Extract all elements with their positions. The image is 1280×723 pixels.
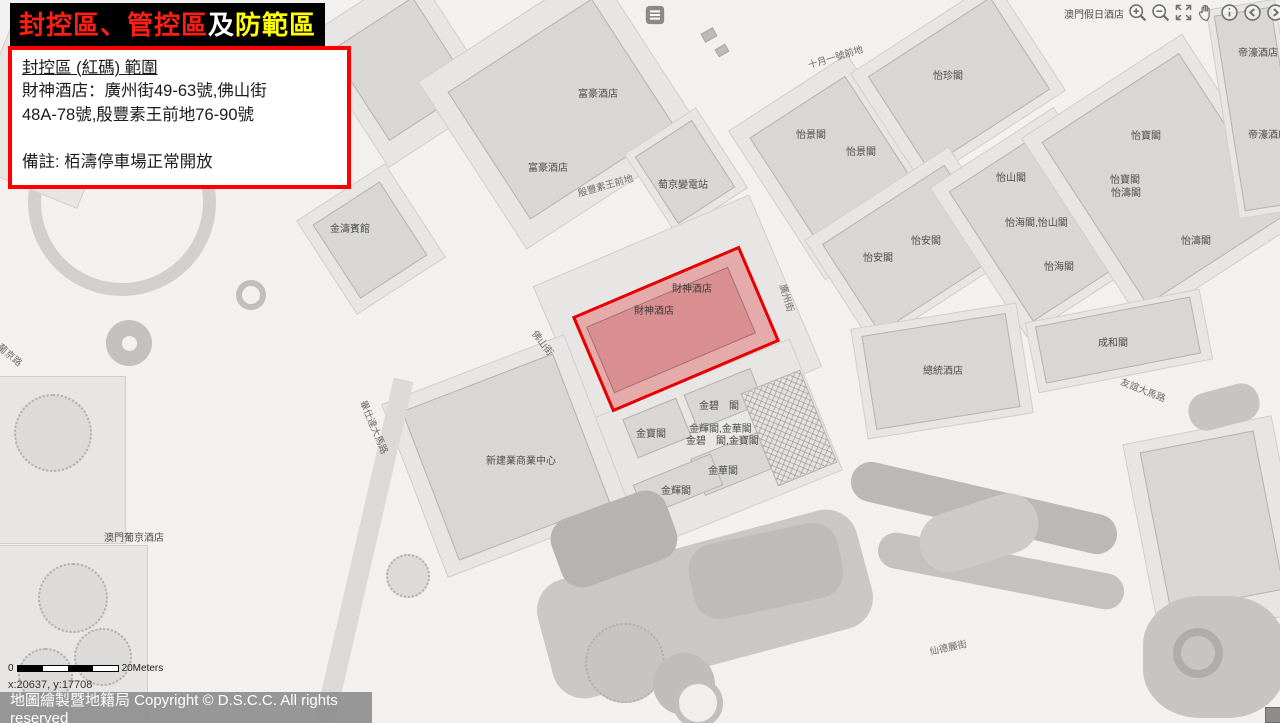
- roundabout-small: [236, 280, 266, 310]
- title-yellow-segment: 防範區: [235, 10, 316, 40]
- map-label: 成和閣: [1098, 334, 1128, 349]
- info-box-line1: 財神酒店：廣州街49-63號,佛山街: [22, 80, 337, 103]
- map-label: 澳門假日酒店: [1064, 6, 1124, 21]
- street-label: 葡京路: [0, 340, 26, 369]
- zone-label: 財神酒店: [672, 280, 712, 295]
- copyright-bar: 地圖繪製暨地籍局 Copyright © D.S.C.C. All rights…: [0, 692, 372, 723]
- garden-circle: [1173, 628, 1223, 678]
- zoom-in-icon[interactable]: [1127, 2, 1148, 23]
- zone-label: 財神酒店: [634, 302, 674, 317]
- street-label: 友誼大馬路: [1119, 374, 1168, 405]
- map-label: 怡海閣: [1044, 258, 1074, 273]
- scale-end: 20Meters: [122, 663, 164, 674]
- scale-bar-graphic: [17, 665, 119, 672]
- overview-map-icon[interactable]: [1265, 707, 1280, 723]
- map-toolbar: [1127, 2, 1280, 23]
- garden-circle: [386, 554, 430, 598]
- map-application: 澳門假日酒店 帝濠酒店 帝濠酒店 十月一號前地 怡珍閣 富豪酒店 富豪酒店 殷豐…: [0, 0, 1280, 723]
- map-label: 金濤賓館: [330, 220, 370, 235]
- map-label: 怡濤閣: [1181, 232, 1211, 247]
- map-label: 金華閣: [708, 462, 738, 477]
- map-label: 富豪酒店: [578, 85, 618, 100]
- map-label: 富豪酒店: [528, 159, 568, 174]
- garden-circle: [673, 678, 723, 723]
- map-label: 怡景閣: [846, 143, 876, 158]
- map-label: 金碧 閣: [699, 397, 739, 412]
- map-label: 萄京變電站: [658, 176, 708, 191]
- roundabout-center: [122, 336, 137, 351]
- map-label: 怡景閣: [796, 126, 826, 141]
- map-label: 新建業商業中心: [486, 452, 556, 467]
- info-box-heading: 封控區 (紅碼) 範圍: [22, 57, 337, 80]
- small-structure: [700, 27, 717, 43]
- map-label: 金輝閣: [661, 482, 691, 497]
- scale-bar: 0 20Meters: [8, 663, 163, 674]
- map-label: 怡珍閣: [933, 67, 963, 82]
- map-label: 怡山閣: [996, 169, 1026, 184]
- info-box-line2: 48A-78號,殷豐素王前地76-90號: [22, 104, 337, 127]
- small-structure: [715, 44, 730, 58]
- map-label: 怡安閣: [863, 249, 893, 264]
- info-box: 封控區 (紅碼) 範圍 財神酒店：廣州街49-63號,佛山街 48A-78號,殷…: [8, 46, 351, 189]
- map-label: 帝濠酒店: [1238, 44, 1278, 59]
- title-white-segment: 及: [208, 10, 235, 40]
- full-extent-icon[interactable]: [1173, 2, 1194, 23]
- title-red-segment: 封控區、管控區: [19, 10, 208, 40]
- garden-circle: [38, 563, 108, 633]
- map-label: 澳門葡京酒店: [104, 529, 164, 544]
- info-box-note: 備註: 栢濤停車場正常開放: [22, 151, 337, 174]
- garden-circle: [74, 628, 132, 686]
- copyright-text: 地圖繪製暨地籍局 Copyright © D.S.C.C. All rights…: [10, 689, 372, 723]
- map-label: 總統酒店: [923, 362, 963, 377]
- layers-icon[interactable]: [644, 4, 666, 26]
- page-title: 封控區、管控區及防範區: [10, 3, 325, 46]
- map-label: 金寶閣: [636, 425, 666, 440]
- zoom-out-icon[interactable]: [1150, 2, 1171, 23]
- map-label: 怡安閣: [911, 232, 941, 247]
- map-label: 怡濤閣: [1111, 184, 1141, 199]
- map-label: 怡海閣,怡山閣: [1005, 214, 1068, 229]
- previous-extent-icon[interactable]: [1242, 2, 1263, 23]
- pan-icon[interactable]: [1196, 2, 1217, 23]
- street-median: [311, 377, 414, 723]
- next-extent-icon[interactable]: [1265, 2, 1280, 23]
- map-label: 怡寶閣: [1131, 127, 1161, 142]
- scale-start: 0: [8, 663, 14, 674]
- building-fortuna-hotel: [447, 0, 674, 220]
- map-label: 帝濠酒店: [1248, 126, 1280, 141]
- identify-icon[interactable]: [1219, 2, 1240, 23]
- garden-circle: [14, 394, 92, 472]
- map-label: 金碧 閣,金寶閣: [686, 432, 759, 447]
- street-label: 仙德麗街: [928, 636, 968, 658]
